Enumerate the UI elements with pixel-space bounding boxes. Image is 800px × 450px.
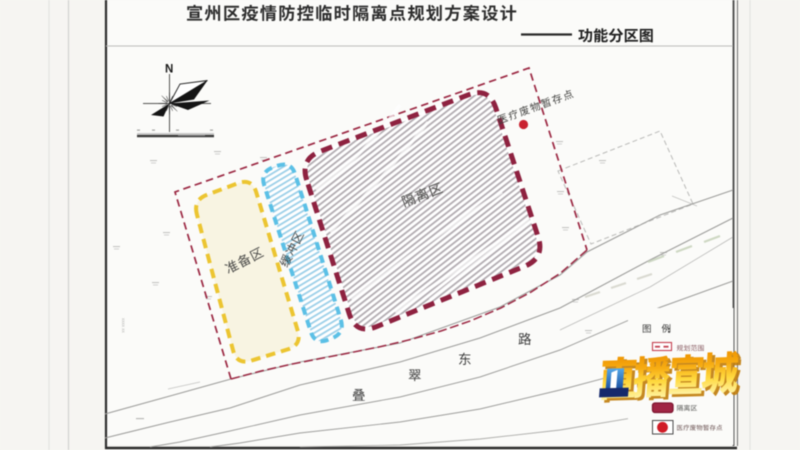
svg-text:xxxx xx: xxxx xx [121,318,126,334]
svg-text:N: N [165,64,173,76]
